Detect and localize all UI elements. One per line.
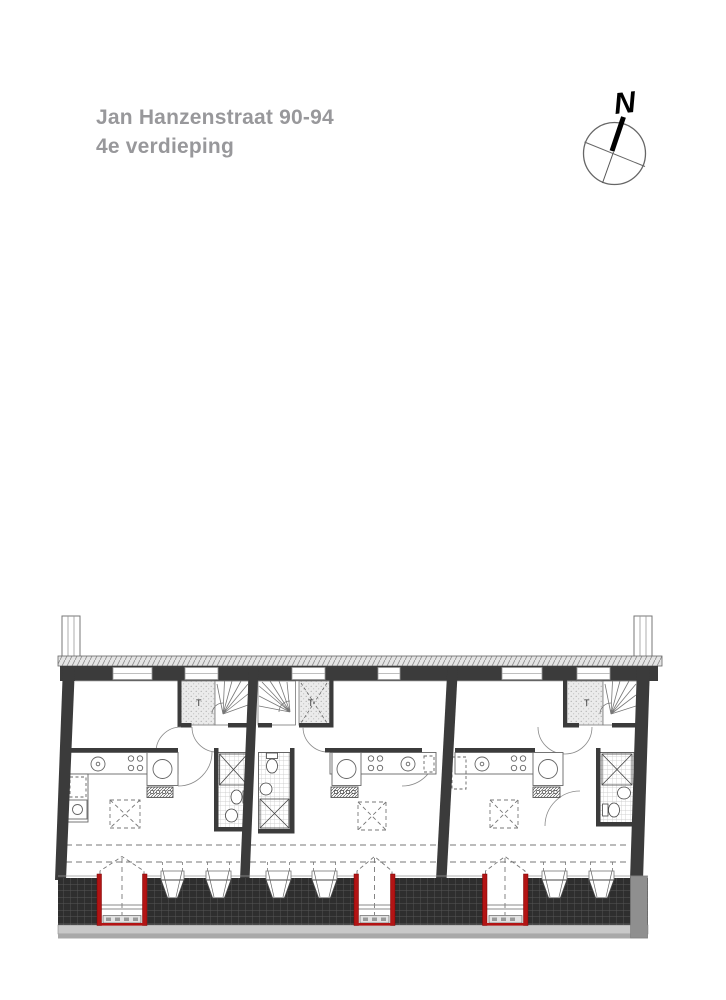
dormer-door-middle — [354, 857, 395, 926]
washbasin-icon — [618, 787, 631, 799]
stair-left — [212, 681, 249, 725]
skylight-right — [490, 800, 518, 828]
washbasin-icon — [260, 783, 272, 795]
dormer-door-left — [97, 857, 147, 926]
unit-left-plan: T — [66, 679, 249, 862]
compass-circle — [584, 123, 646, 185]
floor-plan: T — [55, 616, 662, 939]
skylight-left — [110, 800, 140, 828]
stair-right — [600, 681, 637, 725]
shaft-middle-label: T — [308, 698, 314, 708]
dormer-door-right — [483, 857, 529, 926]
chimney-left — [62, 616, 80, 657]
kitchen-middle — [330, 753, 436, 798]
unit-middle-plan: T — [250, 679, 436, 862]
stair-middle — [258, 681, 296, 725]
page: Jan Hanzenstraat 90-94 4e verdieping — [0, 0, 726, 1000]
north-label: N — [612, 86, 638, 121]
washbasin-icon — [226, 809, 238, 822]
toilet-icon — [231, 790, 242, 804]
unit-right-plan: T — [450, 679, 637, 862]
shaft-left-label: T — [196, 698, 202, 708]
toilet-icon — [267, 759, 278, 773]
bathroom-middle — [258, 748, 295, 834]
drawing-canvas: N — [0, 0, 726, 1000]
bathroom-right — [596, 748, 637, 827]
skylight-middle — [358, 802, 386, 830]
north-compass: N — [584, 86, 646, 185]
chimney-right — [634, 616, 652, 657]
kitchen-right — [452, 753, 563, 798]
top-facade — [58, 656, 662, 681]
shaft-right-label: T — [584, 698, 590, 708]
toilet-icon — [609, 803, 620, 817]
